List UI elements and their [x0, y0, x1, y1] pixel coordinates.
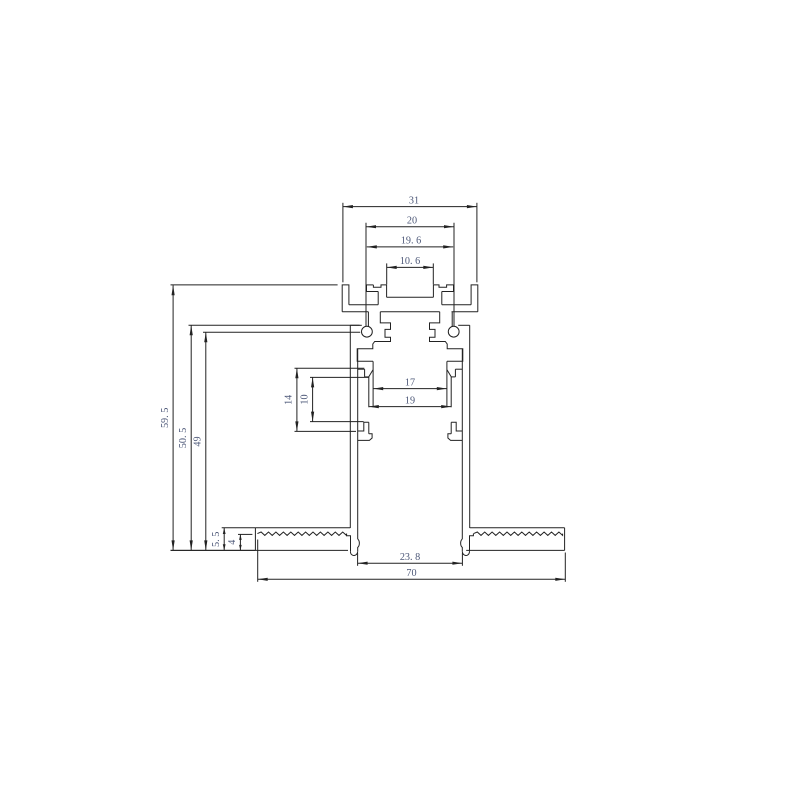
- svg-text:4: 4: [227, 540, 238, 545]
- svg-text:14: 14: [284, 395, 295, 405]
- svg-text:10: 10: [299, 394, 310, 404]
- svg-text:31: 31: [409, 195, 419, 206]
- svg-text:49: 49: [193, 436, 204, 446]
- svg-text:20: 20: [407, 216, 417, 227]
- svg-text:10. 6: 10. 6: [400, 256, 420, 267]
- svg-text:5. 5: 5. 5: [211, 532, 222, 547]
- svg-text:19. 6: 19. 6: [401, 236, 421, 247]
- svg-text:50. 5: 50. 5: [178, 428, 189, 448]
- svg-text:23. 8: 23. 8: [400, 552, 420, 563]
- svg-text:19: 19: [405, 395, 415, 406]
- svg-text:59. 5: 59. 5: [160, 408, 171, 428]
- svg-text:70: 70: [406, 568, 416, 579]
- svg-text:17: 17: [405, 377, 415, 388]
